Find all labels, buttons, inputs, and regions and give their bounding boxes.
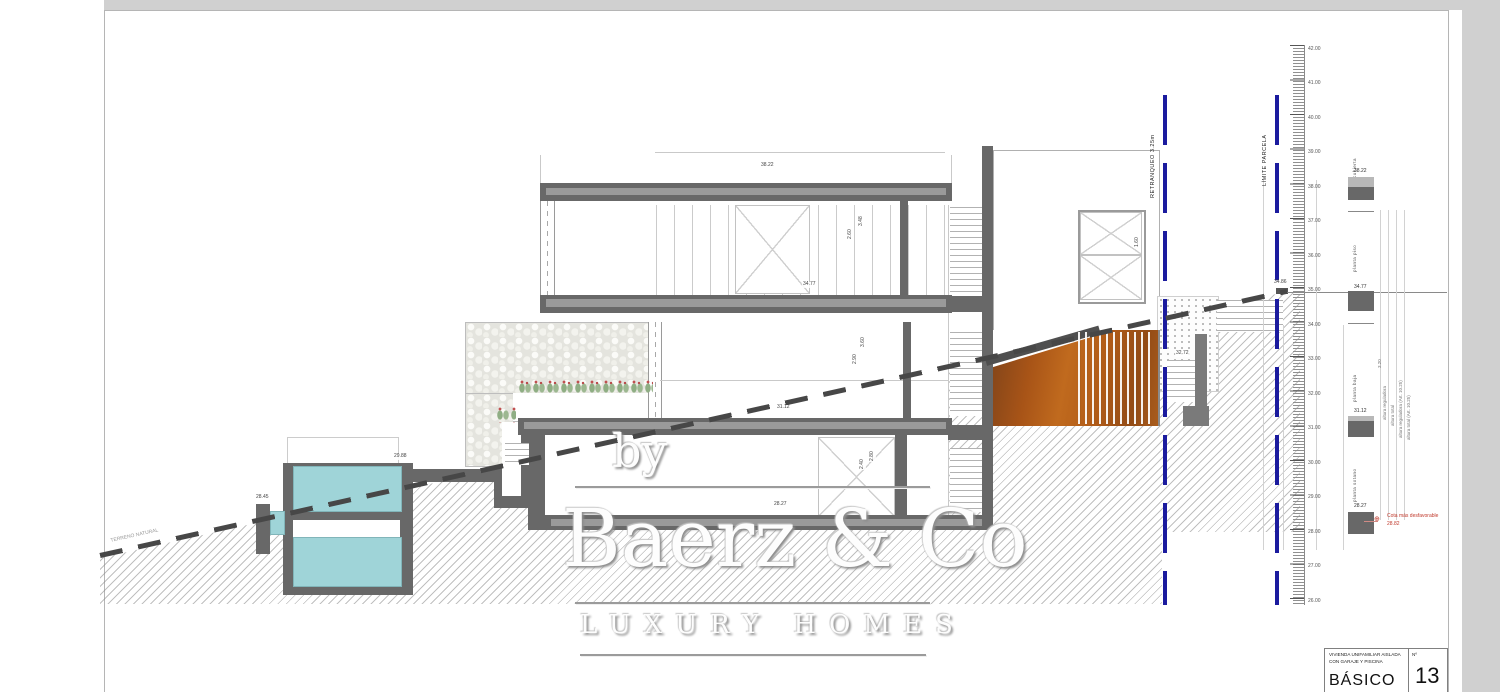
- ruler-label: 37.00: [1308, 218, 1321, 224]
- dim-guide-1: [1263, 180, 1264, 550]
- dimension-label: 3.48: [859, 215, 865, 227]
- first-floor-inner-wall: [900, 201, 908, 295]
- roof-dim-ext-left: [540, 155, 541, 183]
- altura-label: altura reguladora (Art. 10.25): [1398, 380, 1403, 438]
- ground-floor-inner-wall: [903, 322, 911, 418]
- first-floor-glass-wall: [540, 201, 555, 295]
- retaining-wall: [1195, 334, 1207, 410]
- dimension-label: 28.27: [773, 502, 788, 508]
- pool-plenum: [293, 520, 400, 537]
- architectural-section-drawing: RETRANQUEO 3.25m LÍMITE PARCELA 42.0041.…: [0, 0, 1500, 692]
- ruler-label: 29.00: [1308, 494, 1321, 500]
- stair-flight-upper: [950, 207, 982, 293]
- ground-floor-core: [524, 422, 946, 429]
- ruler-label: 41.00: [1308, 80, 1321, 86]
- watermark-rule-middle: [575, 602, 930, 604]
- watermark-rule-top: [575, 486, 930, 488]
- louver-slats: [1078, 332, 1150, 424]
- pool-water-lower: [293, 537, 402, 587]
- elevation-ruler-major-ticks: [1290, 45, 1304, 605]
- ground-floor-glass-wall: [648, 322, 662, 418]
- level-box-sotano: [1348, 512, 1374, 534]
- red-note-text: Cota más desfavorable: [1387, 513, 1438, 520]
- altura-line-3: [1396, 210, 1397, 520]
- ruler-label: 33.00: [1308, 356, 1321, 362]
- dim-guide-4: [1343, 325, 1344, 550]
- watermark-tagline: LUXURY HOMES: [580, 610, 966, 640]
- ruler-label: 38.00: [1308, 184, 1321, 190]
- retaining-wall-footing: [1183, 406, 1209, 426]
- watermark-brand: Baerz & Co: [562, 492, 1028, 585]
- flower-row: [518, 379, 653, 394]
- project-title-line2: CON GARAJE Y PISCINA: [1329, 659, 1383, 665]
- dimension-label: 2.80: [870, 450, 876, 462]
- altura-label: altura total: [1390, 405, 1395, 426]
- level-value-piso: 34.77: [1354, 284, 1367, 290]
- level-name-sotano: planta sotano: [1352, 448, 1357, 502]
- parcel-limit-line: [1275, 95, 1279, 605]
- parcel-limit-label: LÍMITE PARCELA: [1262, 98, 1268, 186]
- annex-window-pane-lower: [1080, 255, 1142, 300]
- level-box-baja: [1348, 421, 1374, 437]
- red-target-icon: ⊕: [1374, 515, 1380, 524]
- dim-guide-2: [1283, 325, 1284, 550]
- dimension-label: 2.60: [848, 228, 854, 240]
- dimension-label: 29.88: [393, 454, 408, 460]
- level-box-piso: [1348, 291, 1374, 311]
- project-title-line1: VIVIENDA UNIFAMILIAR AISLADA: [1329, 652, 1401, 658]
- level-value-baja: 31.12: [1354, 408, 1367, 414]
- dimension-label: 2.90: [853, 353, 859, 365]
- ruler-label: 32.00: [1308, 391, 1321, 397]
- stair-tower-wall: [982, 146, 993, 530]
- level-box-cubierta-top: [1348, 177, 1374, 187]
- ruler-label: 35.00: [1308, 287, 1321, 293]
- roof-dim-line: [655, 152, 945, 153]
- altura-line-4: [1404, 210, 1405, 520]
- red-note-value: 28.82: [1387, 521, 1400, 528]
- ruler-label: 36.00: [1308, 253, 1321, 259]
- level-line-cubierta: [1348, 211, 1374, 212]
- first-floor-shaft: [735, 205, 810, 294]
- stair-flight-middle: [950, 332, 982, 416]
- altura-label: altura reguladora: [1382, 386, 1387, 420]
- dimension-label: 32.72: [1175, 351, 1190, 357]
- level-name-baja: planta baja: [1352, 352, 1357, 402]
- court-stair: [1167, 360, 1195, 402]
- page-top-band: [104, 0, 1500, 10]
- level-name-piso: planta piso: [1352, 222, 1357, 272]
- level-value-sotano: 28.27: [1354, 503, 1367, 509]
- first-floor-core: [546, 299, 946, 307]
- dimension-label: 1.60: [1135, 236, 1141, 248]
- ruler-label: 30.00: [1308, 460, 1321, 466]
- level-box-cubierta: [1348, 187, 1374, 200]
- stair-tower-edge: [948, 205, 949, 515]
- ruler-label: 27.00: [1308, 563, 1321, 569]
- dimension-label: 28.45: [255, 495, 270, 501]
- altura-label: 3.20: [1377, 359, 1382, 368]
- dimension-label: 34.77: [802, 282, 817, 288]
- level-line-piso: [1348, 323, 1374, 324]
- altura-label: altura total (Art. 10.25): [1406, 395, 1411, 440]
- setback-line: [1163, 95, 1167, 605]
- ruler-label: 31.00: [1308, 425, 1321, 431]
- flower-tuft: [496, 406, 516, 423]
- ruler-label: 40.00: [1308, 115, 1321, 121]
- roof-dim-ext-right: [951, 155, 952, 183]
- level-value-cubierta: 38.22: [1354, 168, 1367, 174]
- setback-label: RETRANQUEO 3.25m: [1150, 98, 1156, 198]
- ruler-label: 42.00: [1308, 46, 1321, 52]
- sheet-number: 13: [1415, 663, 1439, 689]
- dimension-label: 38.22: [760, 163, 775, 169]
- dimension-label: 31.12: [776, 405, 791, 411]
- ruler-label: 26.00: [1308, 598, 1321, 604]
- watermark-rule-bottom: [580, 654, 926, 656]
- document-type: BÁSICO: [1329, 672, 1395, 690]
- roof-core: [546, 188, 946, 195]
- page-right-band: [1462, 0, 1500, 692]
- ruler-label: 28.00: [1308, 529, 1321, 535]
- title-block-divider: [1408, 648, 1409, 692]
- sheet-number-label: Nº: [1412, 652, 1417, 658]
- ruler-label: 39.00: [1308, 149, 1321, 155]
- annex-window-pane-upper: [1080, 212, 1142, 255]
- altura-line-2: [1388, 210, 1389, 520]
- dimension-label: 2.40: [860, 458, 866, 470]
- ruler-label: 34.00: [1308, 322, 1321, 328]
- dimension-label: 3.60: [861, 336, 867, 348]
- pool-side-step: [256, 504, 270, 554]
- dimension-label: 34.86: [1273, 280, 1288, 286]
